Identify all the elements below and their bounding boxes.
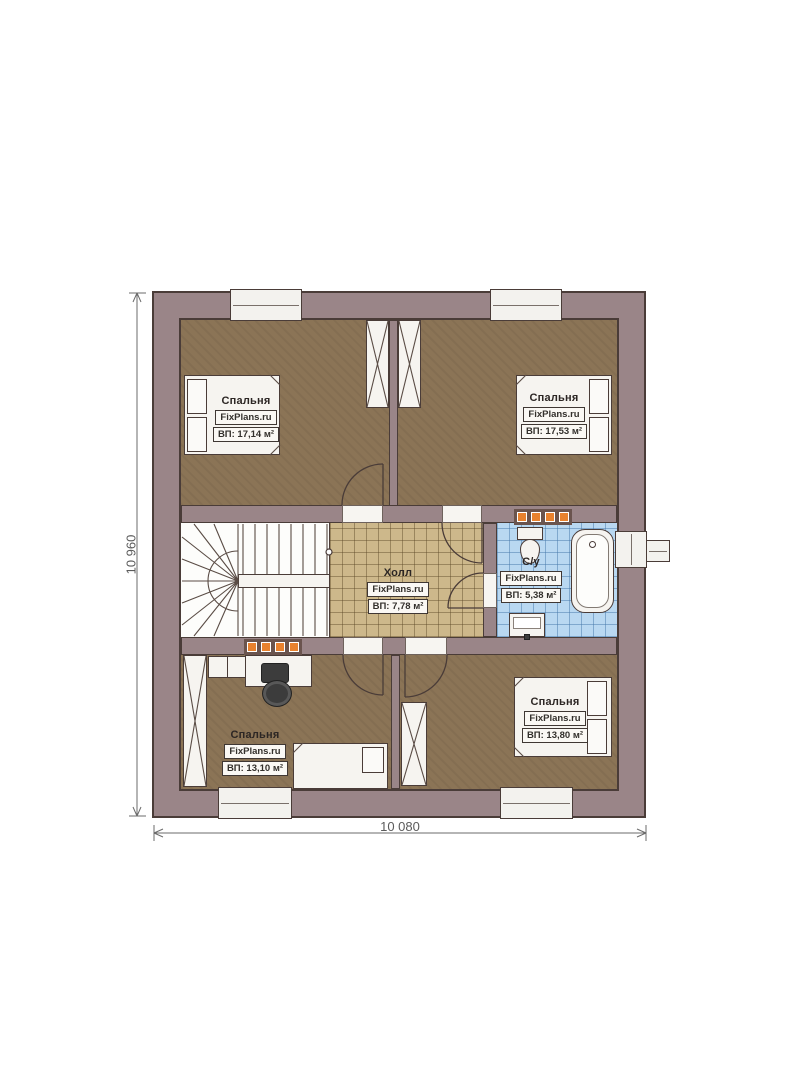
brand-badge: FixPlans.ru	[500, 571, 561, 586]
room-label-bedroom-top-left: Спальня FixPlans.ru ВП: 17,14 м²	[204, 396, 288, 442]
room-area: ВП: 13,80 м²	[522, 728, 588, 743]
radiator-segment	[289, 642, 299, 652]
window-sill-exterior	[646, 540, 670, 562]
brand-badge: FixPlans.ru	[215, 410, 276, 425]
room-name: С/у	[522, 557, 540, 569]
door-threshold-bedroom-top-left	[342, 505, 383, 523]
door-threshold-bedroom-top-right	[442, 505, 482, 523]
room-area: ВП: 5,38 м²	[501, 588, 562, 603]
radiator-segment	[545, 512, 555, 522]
radiator-segment	[275, 642, 285, 652]
room-label-bedroom-top-right: Спальня FixPlans.ru ВП: 17,53 м²	[512, 393, 596, 439]
cabinet	[208, 656, 246, 678]
radiator-bathroom	[514, 509, 572, 525]
brand-badge: FixPlans.ru	[224, 744, 285, 759]
pillow	[362, 747, 384, 773]
room-area: ВП: 13,10 м²	[222, 761, 288, 776]
room-label-hall: Холл FixPlans.ru ВП: 7,78 м²	[356, 568, 440, 614]
window-bottom-right	[500, 787, 573, 819]
room-area: ВП: 7,78 м²	[368, 599, 429, 614]
office-chair	[262, 680, 292, 707]
window-top-left	[230, 289, 302, 321]
radiator-segment	[531, 512, 541, 522]
room-label-bathroom: С/у FixPlans.ru ВП: 5,38 м²	[489, 557, 573, 603]
dimension-label-height: 10 960	[124, 525, 139, 585]
partition-bottom-bedrooms	[391, 655, 400, 789]
wardrobe-bottom-right	[401, 702, 427, 786]
room-area: ВП: 17,14 м²	[213, 427, 279, 442]
radiator-segment	[517, 512, 527, 522]
room-name: Спальня	[231, 730, 280, 742]
room-name: Спальня	[222, 396, 271, 408]
dimension-label-width: 10 080	[360, 819, 440, 834]
staircase-rail	[238, 574, 330, 588]
bathtub-drain	[589, 541, 596, 548]
window-bathroom-right	[615, 531, 647, 568]
sink-tap	[524, 634, 530, 640]
room-name: Спальня	[531, 697, 580, 709]
room-area: ВП: 17,53 м²	[521, 424, 587, 439]
window-bottom-left	[218, 787, 292, 819]
brand-badge: FixPlans.ru	[523, 407, 584, 422]
radiator-segment	[261, 642, 271, 652]
door-threshold-bedroom-bottom-right	[405, 637, 447, 655]
wardrobe-top-left	[366, 320, 389, 408]
room-name: Холл	[384, 568, 412, 580]
wardrobe-bottom-left	[183, 655, 207, 787]
partition-top-bedrooms	[389, 320, 398, 506]
window-top-right	[490, 289, 562, 321]
radiator-bedroom-bottom-left	[244, 639, 302, 655]
brand-badge: FixPlans.ru	[524, 711, 585, 726]
room-label-bedroom-bottom-right: Спальня FixPlans.ru ВП: 13,80 м²	[513, 697, 597, 743]
sink-basin	[513, 617, 541, 629]
door-threshold-bedroom-bottom-left	[343, 637, 383, 655]
radiator-segment	[247, 642, 257, 652]
floor-plan-canvas: Спальня FixPlans.ru ВП: 17,14 м² Спальня…	[0, 0, 792, 1080]
wardrobe-top-right	[398, 320, 421, 408]
room-label-bedroom-bottom-left: Спальня FixPlans.ru ВП: 13,10 м²	[212, 730, 298, 776]
radiator-segment	[559, 512, 569, 522]
brand-badge: FixPlans.ru	[367, 582, 428, 597]
room-name: Спальня	[530, 393, 579, 405]
